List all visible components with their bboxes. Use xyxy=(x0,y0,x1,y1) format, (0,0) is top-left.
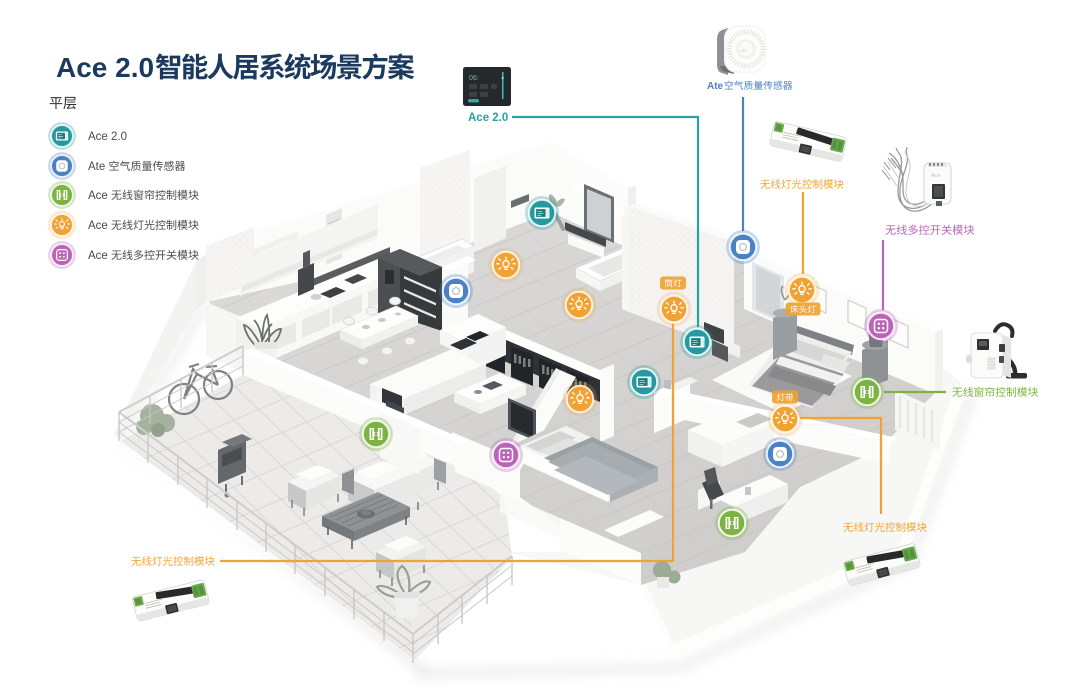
svg-text:Ace 2.0: Ace 2.0 xyxy=(56,52,154,83)
svg-text:06:: 06: xyxy=(469,75,479,82)
svg-text:Ate: Ate xyxy=(707,81,724,92)
svg-text:Ace: Ace xyxy=(88,250,108,262)
svg-text:Ace 2.0: Ace 2.0 xyxy=(88,131,127,143)
svg-text:Ate: Ate xyxy=(88,161,105,173)
svg-text:Ace: Ace xyxy=(88,220,108,232)
svg-text:Ace: Ace xyxy=(88,190,108,202)
svg-text:Ate: Ate xyxy=(740,48,747,53)
svg-text:Ace: Ace xyxy=(931,173,940,179)
svg-text:Ace 2.0: Ace 2.0 xyxy=(468,112,508,124)
